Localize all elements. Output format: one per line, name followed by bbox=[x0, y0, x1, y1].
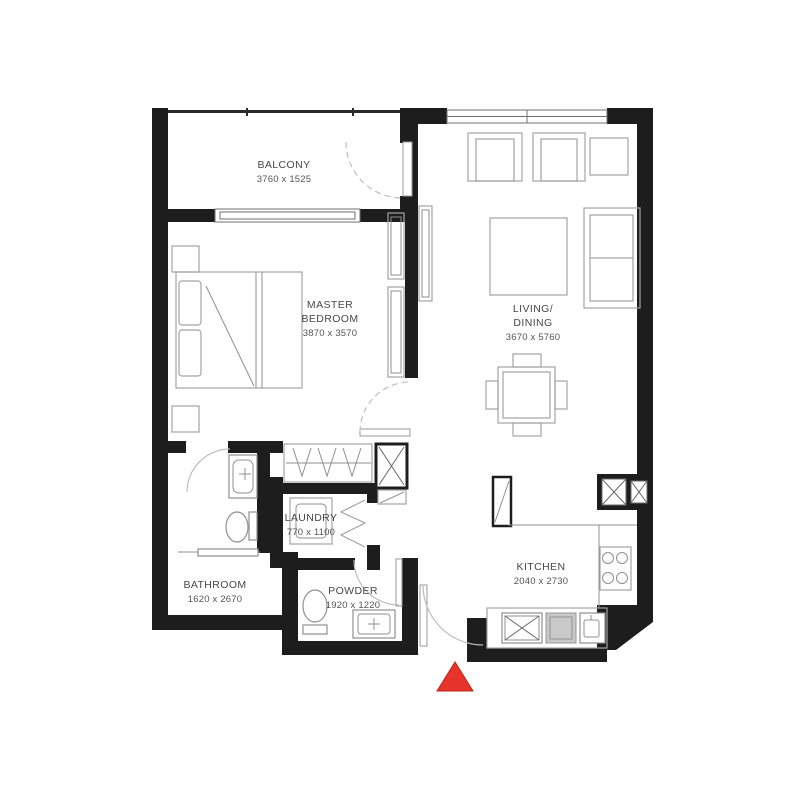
toilet-tank bbox=[303, 625, 327, 634]
living-room-window bbox=[447, 110, 607, 123]
kitchen-dims: 2040 x 2730 bbox=[514, 576, 569, 587]
nightstand bbox=[172, 246, 199, 272]
dining-furniture bbox=[486, 354, 567, 436]
room-labels: BALCONY 3760 x 1525 MASTER BEDROOM 3870 … bbox=[183, 159, 568, 611]
bathroom-dims: 1620 x 2670 bbox=[188, 594, 243, 605]
wardrobe bbox=[388, 213, 404, 279]
nightstand bbox=[172, 406, 199, 432]
balcony-dims: 3760 x 1525 bbox=[257, 174, 312, 185]
hanger-icon bbox=[318, 448, 336, 476]
living-dining-label: LIVING/ bbox=[513, 303, 553, 315]
pillow bbox=[179, 281, 201, 325]
bedroom-balcony-window bbox=[215, 209, 360, 222]
toilet bbox=[226, 512, 248, 542]
hanger-icon bbox=[293, 448, 311, 476]
dining-chair bbox=[486, 381, 498, 409]
burner bbox=[603, 553, 614, 564]
side-table bbox=[590, 138, 628, 175]
master-bedroom-dims: 3870 x 3570 bbox=[303, 328, 358, 339]
master-bedroom-label: MASTER bbox=[307, 299, 353, 311]
living-dining-label2: DINING bbox=[513, 317, 552, 329]
master-bedroom-label2: BEDROOM bbox=[301, 313, 358, 325]
bedroom-furniture bbox=[172, 213, 404, 432]
balcony-label: BALCONY bbox=[258, 159, 311, 171]
burner bbox=[617, 573, 628, 584]
entrance-triangle-icon bbox=[437, 662, 473, 691]
bedroom-door bbox=[360, 382, 410, 436]
floor-plan-page: BALCONY 3760 x 1525 MASTER BEDROOM 3870 … bbox=[0, 0, 800, 800]
bathroom-fixtures bbox=[178, 455, 260, 556]
floor-plan: BALCONY 3760 x 1525 MASTER BEDROOM 3870 … bbox=[0, 0, 800, 800]
hall-closet bbox=[284, 444, 372, 482]
living-furniture bbox=[419, 133, 640, 308]
powder-fixtures bbox=[303, 590, 395, 638]
toilet bbox=[249, 512, 257, 540]
powder-dims: 1920 x 1220 bbox=[326, 600, 381, 611]
laundry-dims: 770 x 1100 bbox=[287, 527, 335, 538]
toilet bbox=[303, 590, 327, 622]
kitchen-label: KITCHEN bbox=[517, 561, 566, 573]
bathroom-label: BATHROOM bbox=[183, 579, 246, 591]
tv-console bbox=[419, 206, 432, 301]
dining-chair bbox=[555, 381, 567, 409]
dining-table bbox=[498, 367, 555, 423]
burner bbox=[603, 573, 614, 584]
shower-screen bbox=[198, 549, 258, 556]
hanger-icon bbox=[343, 448, 361, 476]
wardrobe bbox=[388, 287, 404, 377]
laundry-bifold-door bbox=[341, 500, 365, 547]
dining-chair bbox=[513, 354, 541, 367]
pillow bbox=[179, 330, 201, 376]
living-dining-dims: 3670 x 5760 bbox=[506, 332, 561, 343]
bathroom-door bbox=[187, 449, 230, 492]
laundry-label: LAUNDRY bbox=[285, 512, 338, 524]
rug bbox=[490, 218, 567, 295]
dining-chair bbox=[513, 423, 541, 436]
powder-label: POWDER bbox=[328, 585, 378, 597]
balcony-door bbox=[346, 142, 412, 198]
burner bbox=[617, 553, 628, 564]
